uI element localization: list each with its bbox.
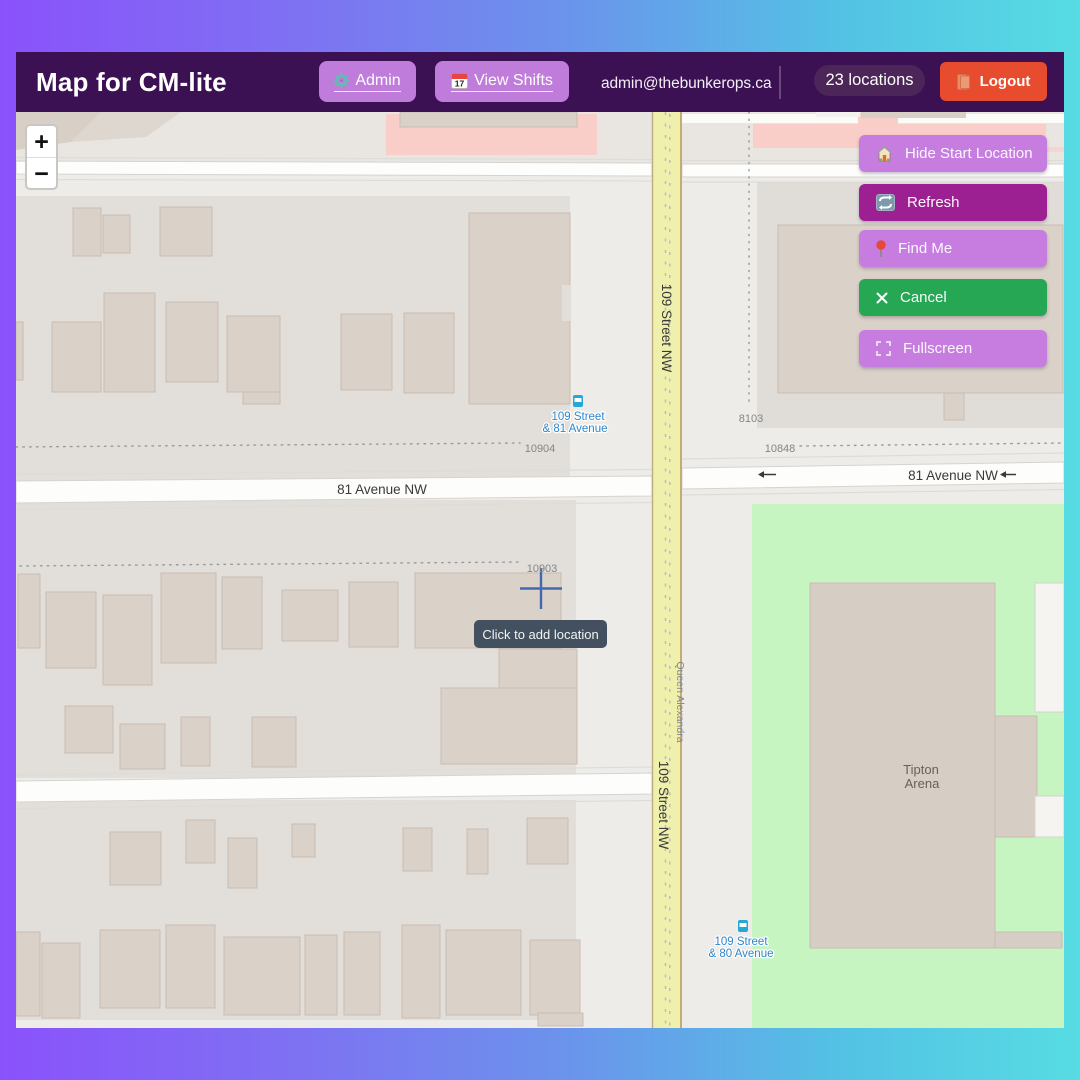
svg-text:17: 17 — [455, 79, 465, 89]
svg-text:Queen Alexandra: Queen Alexandra — [674, 661, 686, 742]
svg-text:& 80 Avenue: & 80 Avenue — [708, 948, 773, 960]
svg-text:109 Street NW: 109 Street NW — [656, 761, 671, 850]
svg-text:109 Street: 109 Street — [714, 936, 768, 948]
svg-text:81 Avenue NW: 81 Avenue NW — [337, 482, 427, 497]
svg-text:Tipton: Tipton — [903, 762, 939, 777]
svg-text:10904: 10904 — [525, 443, 556, 455]
svg-text:8103: 8103 — [739, 413, 763, 425]
svg-text:Arena: Arena — [905, 776, 940, 791]
svg-text:109 Street NW: 109 Street NW — [659, 284, 674, 373]
svg-text:10903: 10903 — [527, 563, 558, 575]
svg-text:81 Avenue NW: 81 Avenue NW — [908, 468, 998, 483]
svg-text:& 81 Avenue: & 81 Avenue — [542, 423, 607, 435]
svg-text:109 Street: 109 Street — [551, 411, 605, 423]
svg-text:10848: 10848 — [765, 443, 796, 455]
